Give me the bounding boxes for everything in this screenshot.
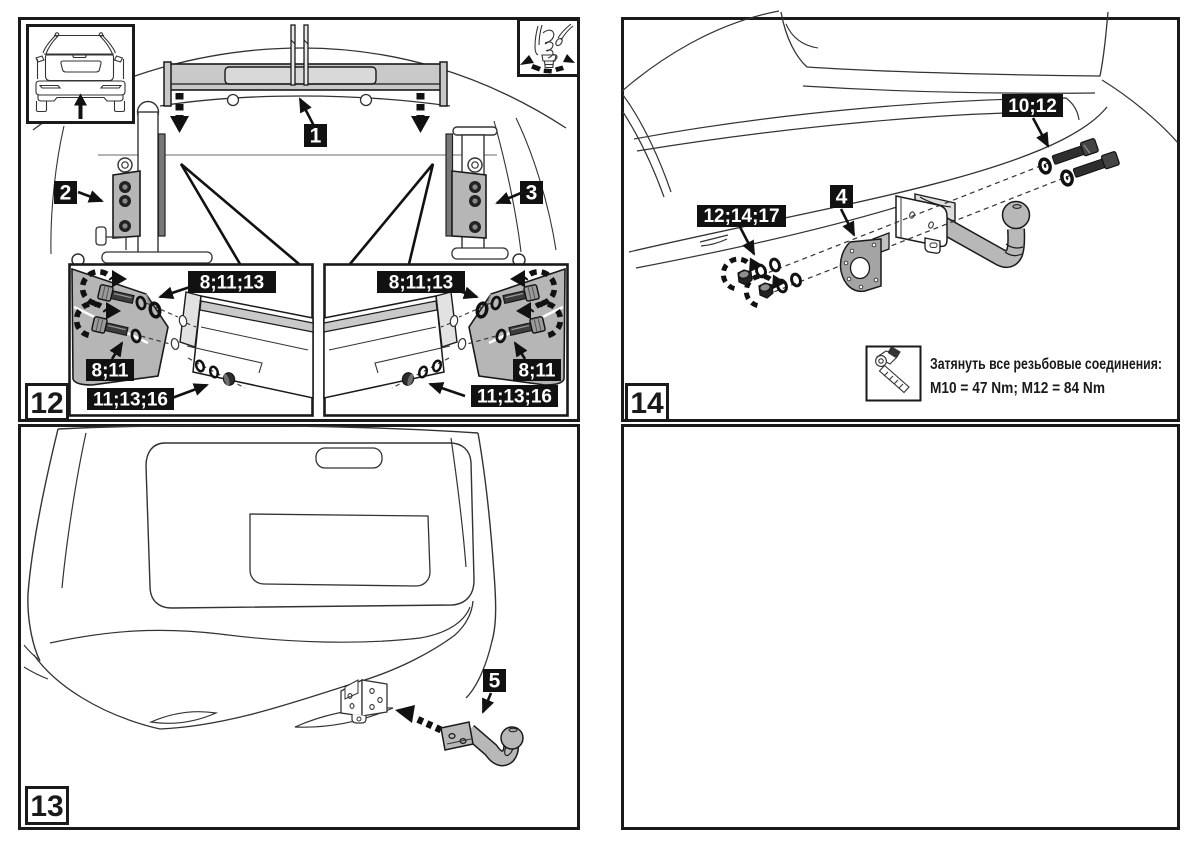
svg-text:14: 14 — [630, 387, 664, 420]
svg-text:11;13;16: 11;13;16 — [93, 390, 168, 411]
svg-text:M10 = 47 Nm; M12 = 84 Nm: M10 = 47 Nm; M12 = 84 Nm — [930, 380, 1105, 397]
svg-text:2: 2 — [60, 182, 72, 205]
svg-text:8;11: 8;11 — [519, 361, 556, 382]
svg-text:8;11;13: 8;11;13 — [200, 273, 264, 294]
svg-text:3: 3 — [526, 182, 538, 205]
svg-text:8;11;13: 8;11;13 — [389, 273, 453, 294]
svg-text:Затянуть все резьбовые соедине: Затянуть все резьбовые соединения: — [930, 356, 1162, 373]
svg-text:4: 4 — [836, 186, 848, 209]
svg-text:1: 1 — [310, 125, 322, 148]
svg-text:5: 5 — [489, 670, 501, 693]
svg-text:11;13;16: 11;13;16 — [477, 387, 552, 408]
svg-text:13: 13 — [30, 790, 63, 823]
svg-text:10;12: 10;12 — [1008, 96, 1057, 117]
svg-text:12: 12 — [30, 387, 63, 420]
svg-text:12;14;17: 12;14;17 — [703, 206, 779, 227]
svg-text:8;11: 8;11 — [92, 361, 129, 382]
